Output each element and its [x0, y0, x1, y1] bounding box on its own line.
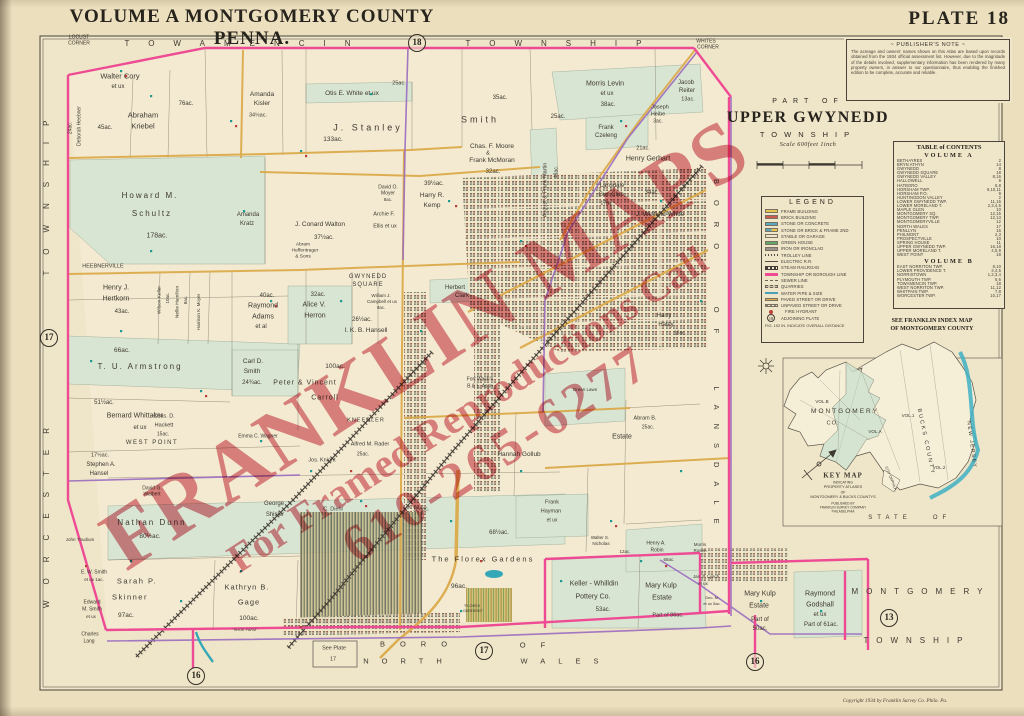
legend-item-label: BRICK BUILDING — [781, 215, 816, 220]
map-label: Robin — [650, 549, 663, 554]
map-label: Frank — [598, 125, 613, 131]
map-label: 51½ac. — [94, 400, 114, 406]
map-label: 11½ac. — [413, 508, 429, 513]
legend: LEGEND FRAME BUILDINGBRICK BUILDINGSTONE… — [761, 196, 864, 343]
map-label: Henry J. — [103, 285, 129, 292]
map-label: 39½ac. — [424, 181, 444, 187]
compass-star-icon — [758, 358, 774, 374]
map-label: Deborah Heebner — [78, 106, 83, 146]
map-label: 25ac. — [642, 426, 654, 431]
map-label: 38ac. — [601, 102, 616, 108]
electric-swatch-icon — [765, 261, 778, 263]
toc-volume-b-rows: EAST NORRITON TWP.8,10LOWER PROVIDENCE T… — [897, 265, 1001, 298]
map-label: Hayman — [541, 509, 561, 515]
map-label: et ux — [86, 615, 96, 620]
map-label: Hannah Gollub — [497, 452, 540, 459]
map-label: Keller - Whilldin — [570, 581, 619, 588]
map-label: Geo. M. — [705, 596, 719, 600]
map-label: Charles — [81, 633, 98, 638]
map-label: 25ac. — [392, 81, 405, 87]
stable-swatch-icon — [765, 234, 778, 238]
map-label: Walter Cory — [100, 72, 139, 80]
map-label: 25ac. — [551, 114, 566, 120]
legend-item-label: TROLLEY LINE — [781, 253, 812, 258]
map-label: 40ac. — [260, 293, 275, 299]
plate-swatch-icon: 18 — [767, 314, 775, 322]
map-label: C. Diehl — [323, 507, 343, 513]
legend-item-label: SEWER LINE — [781, 278, 808, 283]
map-label: Mary Kulp — [645, 583, 677, 590]
map-label: 100ac. — [239, 616, 259, 623]
toc-volume-a-rows: BETHAYRES2BRYN ATHYN14GWYNEDD8GWYNEDD SQ… — [897, 159, 1001, 257]
map-label: Chas. F. Moore — [470, 144, 514, 151]
legend-items: FRAME BUILDINGBRICK BUILDINGSTONE OR CON… — [765, 208, 860, 321]
toc-title: TABLE of CONTENTS — [897, 144, 1001, 151]
frame-swatch-icon — [765, 209, 778, 213]
map-label: Nicholas — [592, 542, 609, 547]
map-label: Wilson Keller — [159, 286, 164, 314]
map-label: 10ac. — [166, 292, 171, 303]
map-label: 13ac. — [681, 97, 694, 103]
map-label: J. Conard Walton — [295, 222, 345, 229]
map-label: M. Smith — [82, 608, 102, 613]
map-label: 21ac. — [636, 146, 649, 152]
map-label: et ux — [600, 91, 613, 97]
map-label: Reiter — [679, 88, 695, 94]
map-label: Harrison K. Moyer — [197, 294, 202, 330]
map-label: 45ac. — [98, 125, 113, 131]
map-label: Abram B. — [634, 416, 657, 422]
map-label: 100ac. — [325, 364, 345, 371]
map-label: Peter & Vincent — [273, 380, 337, 387]
map-label: Amanda — [237, 212, 259, 218]
map-label: Alfred M. Rader — [351, 442, 390, 448]
map-label: Nathan Dunn — [117, 519, 186, 527]
plate-title-block: PART OF UPPER GWYNEDD TOWNSHIP Scale 600… — [708, 98, 908, 148]
legend-item-label: ADJOINING PLATE — [781, 316, 819, 321]
map-label: et ux 1ac. — [84, 578, 104, 583]
map-label: Frank McMoran — [469, 158, 515, 165]
map-label: 25ac. — [357, 453, 369, 458]
map-label: Morris Levin — [586, 81, 624, 88]
map-label: 15ac. — [157, 433, 169, 438]
map-label: CORNER — [68, 42, 90, 47]
map-label: Campbell et ux — [367, 300, 397, 305]
map-label: Kathryn B. — [224, 583, 269, 591]
map-label: 68ac. — [663, 558, 674, 563]
adjoining-plate-number: 17 — [40, 329, 58, 347]
map-label: The Florex Gardens — [432, 555, 535, 563]
plate-number-heading: PLATE 18 — [880, 8, 1010, 30]
map-label: Estate — [612, 434, 632, 441]
map-label: OF — [933, 515, 951, 521]
map-label: Kratz — [240, 221, 254, 227]
map-label: Harry — [657, 313, 672, 319]
map-label: Raymond — [805, 591, 835, 598]
map-label: Sarah P. — [117, 577, 157, 585]
map-label: Abraham — [128, 111, 158, 119]
map-label: NORTH — [363, 657, 455, 665]
map-label: Joseph — [651, 105, 669, 111]
map-label: George — [264, 501, 284, 507]
map-label: Ellis et ux — [373, 224, 397, 230]
legend-item-label: UNPAVED STREET OR DRIVE — [781, 303, 842, 308]
map-label: Walbert — [143, 493, 160, 498]
legend-item-label: WATER PIPE & SIZE — [781, 291, 823, 296]
map-label: KNEEDLER — [347, 418, 385, 424]
map-label: Smith — [461, 116, 499, 125]
map-label: OF — [520, 641, 560, 649]
map-label: 8ac. — [384, 198, 393, 203]
map-label: 48ac. — [555, 166, 560, 178]
map-label: Edward — [84, 601, 101, 606]
map-label: 53ac. — [596, 607, 611, 613]
sewer-swatch-icon — [765, 280, 778, 282]
map-label: WEST POINT — [126, 440, 178, 446]
see-franklin-note: SEE FRANKLIN INDEX MAP OF MONTGOMERY COU… — [862, 317, 1002, 333]
water-swatch-icon — [765, 292, 778, 294]
map-label: et ux — [698, 582, 708, 587]
map-label: WORCESTER — [43, 412, 51, 608]
quarry-swatch-icon — [765, 285, 778, 289]
map-label: et al — [255, 324, 266, 330]
map-label: Moyer — [381, 192, 395, 197]
map-label: TOWNSHIP — [43, 105, 51, 276]
map-label: 17½ac. — [91, 453, 109, 459]
township-name: UPPER GWYNEDD — [708, 109, 908, 127]
map-label: 133ac. — [323, 137, 343, 144]
map-label: 50ac. — [753, 626, 768, 632]
map-label: 3ac. — [653, 120, 662, 125]
legend-item-label: FIRE HYDRANT — [785, 309, 817, 314]
map-label: 96ac. — [451, 584, 467, 591]
legend-item-label: IRON OR IRONCLAD — [781, 246, 823, 251]
see-note-line2: OF MONTGOMERY COUNTY — [862, 325, 1002, 333]
map-label: 17ac. — [600, 201, 613, 207]
map-label: John Thudium — [66, 538, 94, 543]
map-label: Hackett — [155, 423, 174, 429]
map-label: 66ac. — [114, 348, 130, 355]
mixed-swatch-icon — [765, 228, 778, 232]
legend-item-label: STABLE OR GARAGE — [781, 234, 825, 239]
map-label: VOL.B — [815, 400, 828, 405]
map-label: B.& L. Assn — [467, 385, 493, 390]
map-label: et ux — [111, 84, 124, 90]
map-label: William J. — [371, 294, 390, 299]
adjoining-plate-number: 13 — [880, 609, 898, 627]
map-label: Carroll — [311, 395, 339, 402]
legend-item-label: ELECTRIC R.R. — [781, 259, 813, 264]
iron-swatch-icon — [765, 247, 778, 251]
map-label: T. U. Armstrong — [97, 363, 182, 371]
map-label: Adams — [252, 314, 274, 321]
map-label: Mary Kulp — [744, 591, 776, 598]
township-swatch-icon — [765, 273, 778, 276]
map-label: Gage — [238, 598, 260, 606]
legend-item-label: PAVED STREET OR DRIVE — [781, 297, 836, 302]
green-swatch-icon — [765, 241, 778, 245]
map-label: BORO — [712, 179, 720, 265]
legend-item-label: STONE OR BRICK & FRAME 2ND — [781, 228, 849, 233]
map-label: Skinner — [112, 593, 148, 601]
map-label: Herron — [304, 313, 325, 320]
legend-item-label: TOWNSHIP OR BOROUGH LINE — [781, 272, 847, 277]
paved-swatch-icon — [765, 298, 778, 302]
map-label: "SHOE FARM" — [232, 629, 257, 633]
map-label: OF — [712, 307, 720, 349]
map-label: Shisler — [266, 512, 284, 518]
map-label: CO. — [827, 421, 840, 427]
map-label: Henry Gerhart — [626, 156, 670, 163]
map-label: Part of — [751, 617, 769, 623]
map-label: VOL.A — [868, 430, 881, 435]
steam-swatch-icon — [765, 266, 778, 270]
map-label: Stephen A. — [86, 462, 115, 468]
map-label: 26½ac. — [352, 317, 372, 323]
map-label: 34ac. — [645, 190, 660, 196]
toc-row: WEST POINT18 — [897, 253, 1001, 257]
map-label: STATE — [868, 515, 911, 521]
map-label: 178ac. — [146, 233, 167, 240]
map-label: Frank — [545, 500, 559, 506]
map-label: 37½ac. — [314, 235, 334, 241]
map-label: Alice V. — [302, 302, 325, 309]
map-label: Clark — [455, 293, 469, 299]
map-label: Harry R. — [420, 193, 444, 200]
map-label: 97ac. — [118, 613, 134, 620]
map-label: 80½ac. — [139, 534, 160, 541]
toc-row: WORCESTER TWP.10,17 — [897, 294, 1001, 298]
map-label: Fort Wash'n — [467, 378, 494, 383]
map-label: 8ac. — [184, 296, 189, 305]
map-label: Part of 61ac. — [804, 622, 838, 628]
map-scale-label: Scale 600feet 1inch — [708, 142, 908, 148]
adjoining-plate-number: 18 — [408, 34, 426, 52]
map-label: Raymond — [248, 303, 278, 310]
map-label: GARDENS" — [463, 610, 483, 614]
map-label: 68½ac. — [489, 530, 509, 536]
brick-swatch-icon — [765, 215, 778, 219]
map-label: August & Frank Martin — [543, 163, 549, 218]
trolley-swatch-icon — [765, 254, 778, 256]
table-of-contents: TABLE of CONTENTS VOLUME A BETHAYRES2BRY… — [893, 141, 1005, 309]
stone-swatch-icon — [765, 222, 778, 226]
map-label: Nellie Hamilton — [177, 286, 182, 318]
map-label: HEEBNERVILLE — [82, 264, 123, 270]
map-label: Herbert — [445, 285, 465, 291]
map-label: Jacob — [678, 80, 694, 86]
adjoining-plate-number: 16 — [187, 667, 205, 685]
map-label: & Sons — [295, 256, 310, 261]
map-label: Schultz — [132, 210, 172, 218]
unpaved-swatch-icon — [765, 304, 778, 307]
map-label: Hertkorn — [103, 296, 130, 303]
map-label: MONTGOMERY — [811, 409, 879, 416]
atlas-page: VOLUME A MONTGOMERY COUNTY PENNA. PLATE … — [0, 0, 1024, 716]
map-label: 34½ac. — [249, 113, 267, 119]
map-label: GWYNEDD — [349, 274, 387, 280]
map-label: J. Winfield White — [636, 212, 684, 219]
map-label: Kisler — [254, 101, 270, 108]
map-label: 17 — [330, 657, 336, 663]
map-label: 32ac. — [311, 292, 326, 298]
map-label: Hansel — [90, 471, 109, 477]
publishers-note-title: ~ PUBLISHER'S NOTE ~ — [851, 42, 1005, 48]
map-label: 43ac. — [115, 309, 130, 315]
map-label: Godshall — [806, 602, 834, 609]
map-label: KEY MAP — [823, 473, 863, 480]
map-label: VOL.1 — [902, 414, 915, 419]
map-label: 18ac. — [674, 332, 686, 337]
map-label: 76ac. — [179, 101, 194, 107]
map-label: Amanda — [250, 92, 274, 99]
map-label: Emma C. Wagner — [238, 435, 278, 440]
map-label: BORO — [380, 640, 462, 648]
publishers-note-body: The acreage and owners' names shown on t… — [851, 49, 1005, 76]
map-label: Jos. Knight — [308, 458, 335, 464]
legend-item-label: QUARRIES — [781, 284, 804, 289]
map-label: Kriebel — [131, 122, 154, 130]
map-label: LANSDALE — [712, 386, 720, 537]
legend-item-label: STONE OR CONCRETE — [781, 221, 829, 226]
map-label: CORNER — [697, 46, 719, 51]
map-label: MONTGOMERY — [852, 588, 991, 596]
legend-item: 18ADJOINING PLATE — [765, 315, 860, 321]
map-label: E. W. Smith — [81, 571, 107, 576]
legend-item-label: FRAME BUILDING — [781, 209, 818, 214]
legend-item-label: GREEN HOUSE — [781, 240, 813, 245]
florex-greenhouses — [300, 512, 422, 624]
legend-title: LEGEND — [765, 199, 860, 206]
map-label: Walter S. — [591, 536, 609, 541]
map-label: Estate — [749, 603, 769, 610]
map-label: Smith — [244, 369, 261, 376]
map-label: Lang — [83, 640, 94, 645]
map-label: Otis E. White et ux — [325, 91, 379, 98]
map-label: 24ac. — [69, 122, 74, 134]
map-label: Part of 86ac. — [652, 613, 683, 619]
map-label: Haley — [658, 322, 673, 328]
map-label: Rosen — [693, 549, 706, 554]
adjoining-plate-number: 16 — [746, 653, 764, 671]
map-label: J. Stanley — [333, 124, 403, 133]
map-label: Estate — [652, 595, 672, 602]
map-label: I. K. B. Hansell — [345, 328, 388, 335]
map-label: Green Lawn — [573, 388, 598, 393]
map-label: Henry A. — [646, 542, 665, 547]
map-label: TOWAMENCIN — [124, 40, 369, 48]
part-of-label: PART OF — [708, 98, 908, 105]
map-label: MONTGOMERY & BUCKS COUNTYS — [810, 496, 875, 500]
map-label: Heibe — [651, 112, 665, 118]
map-label: et ux — [133, 425, 146, 431]
map-label: et ux — [813, 612, 826, 618]
map-label: 24¾ac. — [242, 380, 262, 386]
map-label: WALES — [521, 657, 612, 665]
map-label: TOWNSHIP — [466, 40, 661, 48]
copyright-line: Copyright 1934 by Franklin Survey Co. Ph… — [780, 698, 1010, 704]
map-label: Lansdale — [600, 183, 624, 189]
map-label: Morris — [694, 543, 707, 548]
map-label: 32ac. — [486, 169, 501, 175]
map-label: See Plate — [322, 646, 346, 652]
map-label: PHILADELPHIA — [832, 510, 855, 513]
publishers-note: ~ PUBLISHER'S NOTE ~ The acreage and own… — [846, 39, 1010, 101]
map-label: Howard M. — [122, 192, 179, 200]
map-label: Chas. D. — [153, 414, 174, 420]
map-label: Gun Club — [598, 192, 623, 198]
map-label: et ux 5ac. — [703, 602, 720, 606]
map-label: 35ac. — [493, 95, 508, 101]
see-note-line1: SEE FRANKLIN INDEX MAP — [862, 317, 1002, 325]
map-label: TOWNSHIP — [864, 637, 971, 645]
adjoining-plate-number: 17 — [475, 642, 493, 660]
map-label: Czeleng — [595, 133, 617, 139]
map-label: SQUARE — [352, 282, 383, 288]
legend-note: FIG. 192 IN. INDICATE OVERALL DISTANCE — [765, 323, 860, 328]
map-label: 8ac. — [377, 306, 385, 310]
township-word: TOWNSHIP — [708, 130, 908, 139]
legend-item-label: STEAM RAILROAD — [781, 265, 819, 270]
map-label: Archie F. — [373, 212, 394, 218]
map-label: 12ac. — [619, 550, 630, 555]
map-label: Pottery Co. — [575, 594, 610, 601]
map-label: Carl D. — [243, 359, 263, 366]
map-label: et ux — [547, 519, 558, 524]
map-label: Jas. P. Lynch — [693, 575, 719, 580]
map-label: Kemp — [424, 203, 441, 210]
